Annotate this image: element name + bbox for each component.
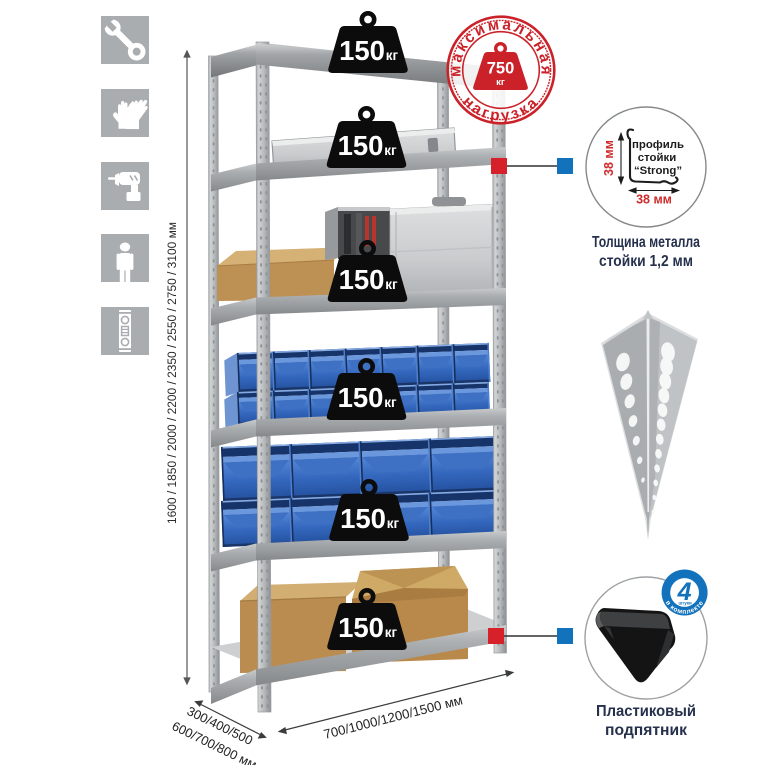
svg-text:кг: кг — [386, 48, 399, 63]
svg-text:стойки 1,2 мм: стойки 1,2 мм — [599, 253, 693, 270]
svg-text:Толщина металла: Толщина металла — [592, 234, 700, 251]
svg-text:38 мм: 38 мм — [636, 193, 672, 207]
svg-text:“Strong”: “Strong” — [634, 165, 682, 177]
svg-text:кг: кг — [384, 395, 397, 410]
svg-text:Пластиковый: Пластиковый — [596, 703, 696, 720]
svg-text:1600 / 1850 / 2000 / 2200 / 23: 1600 / 1850 / 2000 / 2200 / 2350 / 2550 … — [165, 222, 179, 524]
svg-text:150: 150 — [339, 264, 385, 295]
svg-text:750: 750 — [487, 60, 515, 78]
svg-text:150: 150 — [338, 130, 384, 161]
svg-text:подпятник: подпятник — [605, 722, 687, 739]
svg-text:150: 150 — [338, 382, 384, 413]
svg-text:кг: кг — [384, 143, 397, 158]
svg-text:кг: кг — [387, 516, 400, 531]
svg-text:38 мм: 38 мм — [602, 140, 616, 176]
svg-text:штуки: штуки — [678, 601, 692, 606]
svg-text:кг: кг — [496, 77, 505, 88]
svg-text:профиль: профиль — [632, 139, 684, 151]
svg-text:кг: кг — [385, 277, 398, 292]
svg-text:стойки: стойки — [638, 152, 676, 164]
svg-text:150: 150 — [339, 35, 385, 66]
svg-text:150: 150 — [340, 503, 386, 534]
svg-text:кг: кг — [385, 625, 398, 640]
svg-text:150: 150 — [338, 612, 384, 643]
